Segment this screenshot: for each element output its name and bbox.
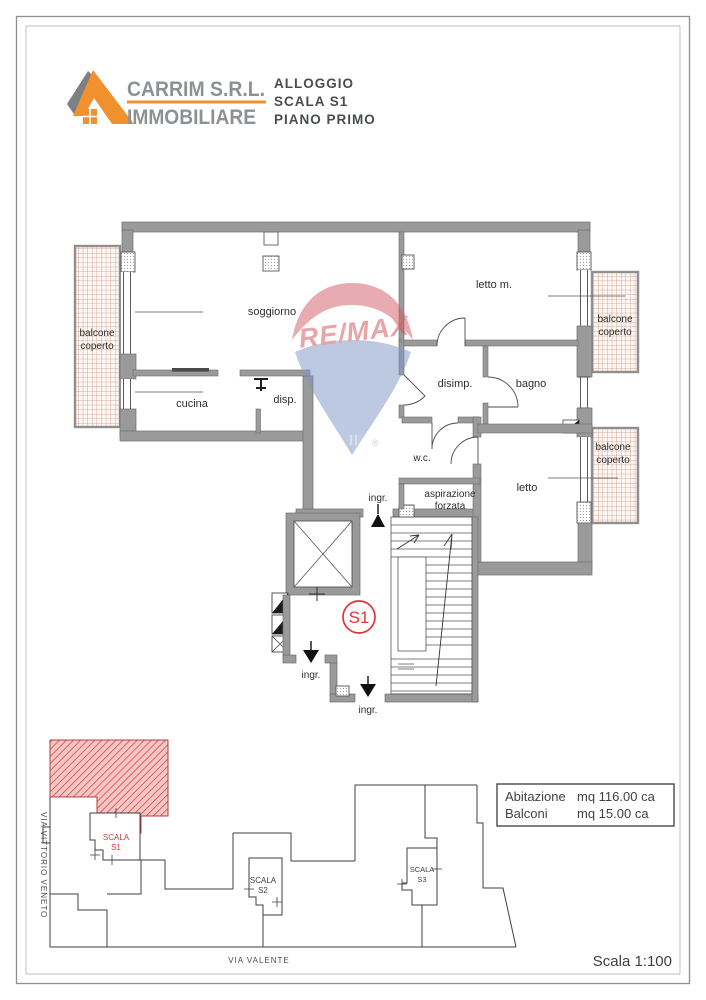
room-label-soggiorno: soggiorno [248, 306, 296, 318]
area-info-box: Abitazione mq 116.00 ca Balconi mq 15.00… [497, 784, 674, 826]
scala-s1-label-1: SCALA [103, 833, 130, 842]
window-left-1 [121, 272, 133, 354]
header: CARRIM S.R.L. IMMOBILIARE ALLOGGIO SCALA… [67, 70, 376, 129]
room-label-letto: letto [517, 482, 538, 494]
info-row-1-value: mq 116.00 ca [577, 789, 656, 804]
room-label-wc: w.c. [412, 453, 430, 464]
balcony-left-label-2: coperto [80, 341, 114, 352]
site-plan: SCALA S1 SCALA S2 SCALA S3 VIA VITTORIO … [39, 740, 516, 965]
entrance-arrow-icon-left [303, 641, 319, 663]
logo-divider [127, 101, 266, 104]
info-row-1-label: Abitazione [505, 789, 566, 804]
window-left-2 [121, 379, 133, 409]
room-label-disp: disp. [273, 394, 296, 406]
balcony-rt-label-2: coperto [598, 327, 632, 338]
balcony-rt-label-1: balcone [597, 314, 632, 325]
stairs [391, 517, 472, 694]
entrance-label-bottom: ingr. [359, 705, 378, 716]
room-label-letto-m: letto m. [476, 279, 512, 291]
entrance-label-top: ingr. [369, 493, 388, 504]
room-label-cucina: cucina [176, 398, 209, 410]
street-label-via-vittorio-veneto: VIA VITTORIO VENETO [39, 812, 48, 918]
room-label-bagno: bagno [516, 378, 547, 390]
entrance-arrow-icon-bottom [360, 676, 376, 697]
scala-s3-label-2: S3 [417, 875, 426, 884]
room-label-aspirazione-2: forzata [435, 501, 466, 512]
street-label-via-valente: VIA VALENTE [228, 956, 290, 965]
room-label-aspirazione-1: aspirazione [424, 489, 476, 500]
balcony-rb-label-1: balcone [595, 442, 630, 453]
kitchen-counter-mark [172, 368, 209, 372]
stair-core-labels: SCALA S1 SCALA S2 SCALA S3 [103, 833, 434, 895]
window-bagno [578, 377, 590, 408]
room-label-disimp: disimp. [438, 378, 473, 390]
scala-s2-label-1: SCALA [250, 876, 277, 885]
door-jamb-symbol [254, 379, 268, 391]
balcony-left-label-1: balcone [79, 328, 114, 339]
floorplan-drawing: CARRIM S.R.L. IMMOBILIARE ALLOGGIO SCALA… [0, 0, 706, 1000]
scala-s1-label-2: S1 [111, 843, 121, 852]
registered-mark: ® [372, 438, 379, 448]
company-subtitle: IMMOBILIARE [127, 106, 256, 129]
scala-s2-label-2: S2 [258, 886, 268, 895]
plan-sheet: CARRIM S.R.L. IMMOBILIARE ALLOGGIO SCALA… [0, 0, 706, 1000]
unit-badge-label: S1 [349, 608, 370, 627]
company-logo-house-icon [67, 70, 134, 124]
scala-s3-label-1: SCALA [410, 865, 435, 874]
info-row-2-value: mq 15.00 ca [577, 806, 649, 821]
window-right-top [578, 270, 590, 326]
unit-badge: S1 [343, 601, 375, 633]
doc-line-scala: SCALA S1 [274, 94, 348, 109]
scale-note: Scala 1:100 [593, 953, 672, 970]
company-name: CARRIM S.R.L. [127, 78, 265, 101]
elevator [286, 513, 360, 601]
entrance-arrow-icon-top [371, 504, 385, 527]
balcony-rb-label-2: coperto [596, 455, 630, 466]
window-letto [578, 437, 590, 502]
doc-line-alloggio: ALLOGGIO [274, 76, 354, 91]
info-row-2-label: Balconi [505, 806, 548, 821]
entrance-label-left: ingr. [302, 670, 321, 681]
doc-line-piano: PIANO PRIMO [274, 112, 376, 127]
